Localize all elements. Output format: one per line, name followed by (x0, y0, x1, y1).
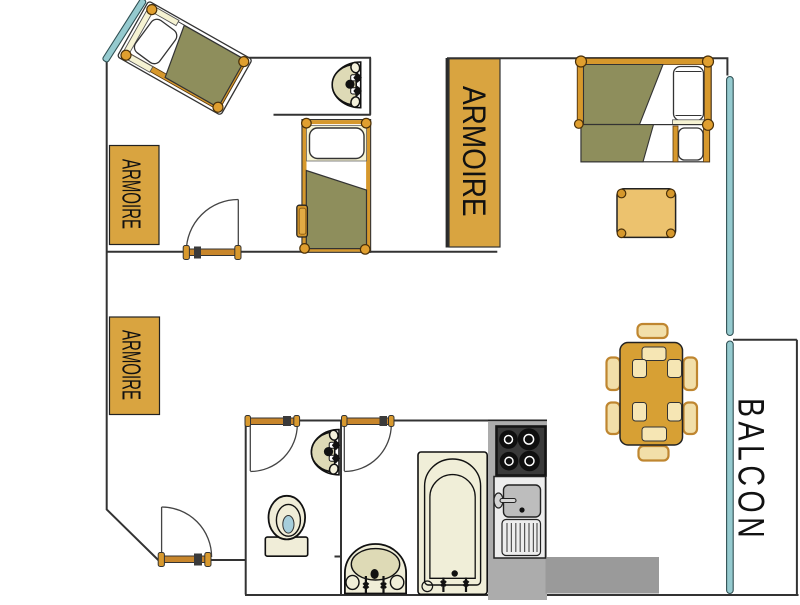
svg-text:ARMOIRE: ARMOIRE (116, 330, 145, 400)
svg-text:ARMOIRE: ARMOIRE (455, 86, 490, 217)
svg-text:ARMOIRE: ARMOIRE (116, 159, 145, 229)
svg-text:BALCON: BALCON (730, 398, 771, 542)
